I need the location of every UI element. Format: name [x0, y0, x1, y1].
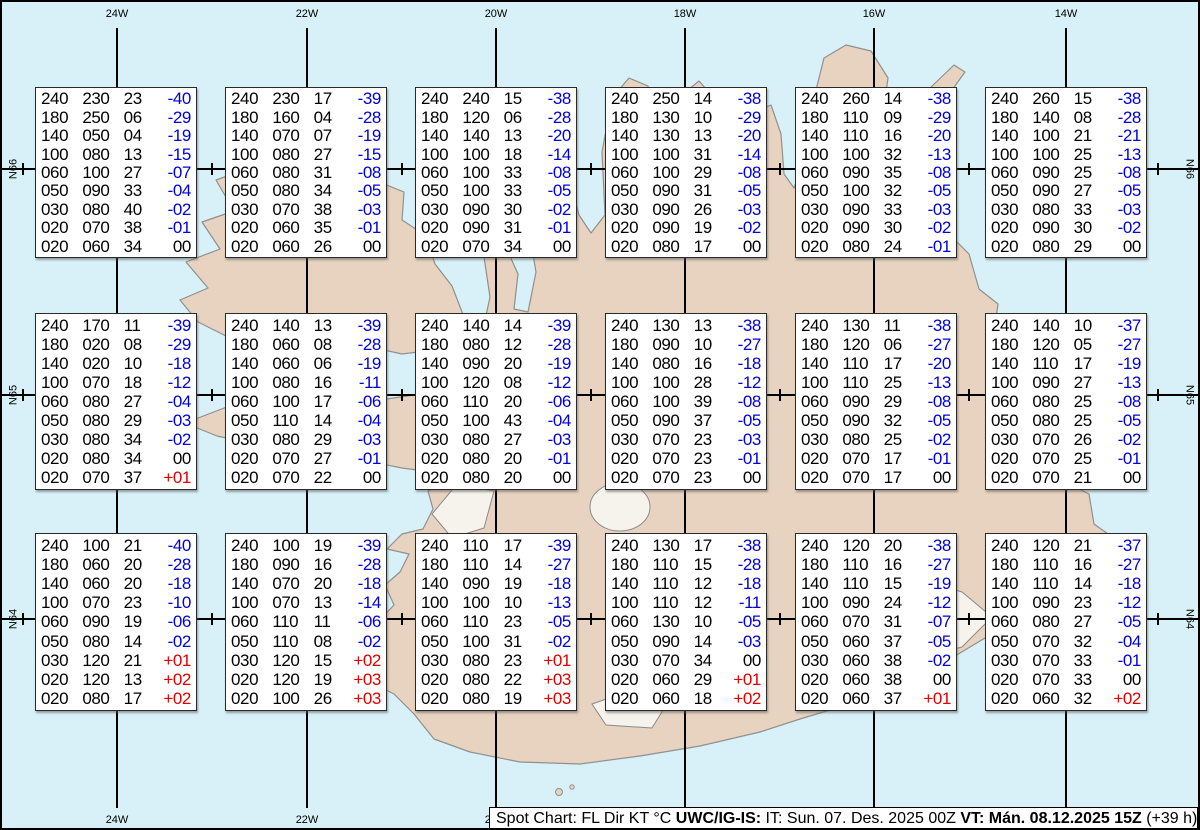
spot-data-row: 05008025-05 [991, 412, 1141, 429]
wind-direction: 090 [652, 201, 685, 218]
flight-level: 180 [41, 109, 74, 126]
spot-data-row: 03012021+01 [41, 652, 191, 669]
temperature-c: -05 [535, 182, 571, 199]
wind-direction: 060 [842, 671, 875, 688]
flight-level: 050 [801, 412, 834, 429]
wind-direction: 110 [842, 575, 875, 592]
flight-level: 180 [991, 109, 1024, 126]
flight-level: 100 [801, 146, 834, 163]
temperature-c: -03 [345, 201, 381, 218]
flight-level: 020 [41, 450, 74, 467]
wind-direction: 130 [652, 109, 685, 126]
spot-data-box-r3c4: 24013017-3818011015-2814011012-181001101… [605, 533, 767, 711]
spot-data-row: 10008013-15 [41, 146, 191, 163]
wind-direction: 080 [462, 671, 495, 688]
flight-level: 020 [421, 469, 454, 486]
temperature-c: -27 [725, 336, 761, 353]
wind-speed-kt: 10 [694, 109, 717, 126]
wind-speed-kt: 37 [884, 690, 907, 707]
wind-direction: 070 [652, 469, 685, 486]
wind-direction: 080 [272, 374, 305, 391]
spot-data-box-r3c5: 24012020-3818011016-2714011015-191000902… [795, 533, 957, 711]
temperature-c: -38 [535, 90, 571, 107]
temperature-c: -12 [535, 374, 571, 391]
temperature-c: -19 [345, 127, 381, 144]
flight-level: 180 [801, 336, 834, 353]
latitude-label-right: N66 [1184, 159, 1195, 179]
wind-speed-kt: 31 [504, 633, 527, 650]
spot-data-row: 24010021-40 [41, 537, 191, 554]
temperature-c: -29 [155, 336, 191, 353]
spot-data-row: 02009030-02 [801, 219, 951, 236]
wind-direction: 100 [462, 412, 495, 429]
wind-speed-kt: 37 [884, 633, 907, 650]
flight-level: 030 [801, 652, 834, 669]
spot-data-row: 24024015-38 [421, 90, 571, 107]
spot-data-row: 24014010-37 [991, 317, 1141, 334]
longitude-label-top: 16W [863, 8, 886, 20]
flight-level: 050 [801, 182, 834, 199]
wind-direction: 140 [462, 317, 495, 334]
wind-direction: 080 [462, 652, 495, 669]
flight-level: 100 [991, 594, 1024, 611]
wind-speed-kt: 31 [694, 146, 717, 163]
wind-speed-kt: 14 [504, 317, 527, 334]
temperature-c: -39 [345, 90, 381, 107]
wind-direction: 070 [652, 431, 685, 448]
flight-level: 240 [421, 90, 454, 107]
temperature-c: -38 [915, 537, 951, 554]
latitude-label-left: N64 [9, 609, 20, 629]
wind-direction: 140 [462, 127, 495, 144]
flight-level: 240 [801, 537, 834, 554]
wind-speed-kt: 23 [504, 652, 527, 669]
temperature-c: 00 [1105, 238, 1141, 255]
spot-data-row: 05009031-05 [611, 182, 761, 199]
flight-level: 140 [991, 127, 1024, 144]
wind-direction: 070 [82, 469, 115, 486]
spot-data-row: 10010032-13 [801, 146, 951, 163]
temperature-c: -08 [535, 164, 571, 181]
wind-direction: 110 [652, 556, 685, 573]
wind-speed-kt: 15 [1074, 90, 1097, 107]
flight-level: 060 [41, 164, 74, 181]
spot-data-row: 18011016-27 [991, 556, 1141, 573]
wind-direction: 110 [272, 412, 305, 429]
spot-data-row: 02006032+02 [991, 690, 1141, 707]
temperature-c: 00 [725, 652, 761, 669]
spot-data-row: 02007017-01 [801, 450, 951, 467]
flight-level: 140 [801, 355, 834, 372]
temperature-c: 00 [345, 238, 381, 255]
wind-speed-kt: 17 [504, 537, 527, 554]
flight-level: 140 [611, 575, 644, 592]
spot-data-row: 14013013-20 [611, 127, 761, 144]
wind-speed-kt: 32 [1074, 690, 1097, 707]
flight-level: 020 [421, 219, 454, 236]
longitude-label-top: 20W [485, 8, 508, 20]
flight-level: 020 [231, 450, 264, 467]
spot-data-row: 06010017-06 [231, 393, 381, 410]
wind-direction: 070 [82, 594, 115, 611]
spot-data-row: 06011020-06 [421, 393, 571, 410]
temperature-c: -19 [345, 355, 381, 372]
temperature-c: -05 [1105, 412, 1141, 429]
wind-speed-kt: 31 [884, 613, 907, 630]
spot-data-row: 03009033-03 [801, 201, 951, 218]
flight-level: 020 [41, 671, 74, 688]
temperature-c: -39 [345, 537, 381, 554]
wind-direction: 060 [272, 219, 305, 236]
info-prefix: Spot Chart: FL Dir KT °C [496, 810, 676, 827]
spot-data-row: 05009014-03 [611, 633, 761, 650]
flight-level: 020 [801, 450, 834, 467]
flight-level: 050 [801, 633, 834, 650]
spot-data-row: 02006037+01 [801, 690, 951, 707]
spot-data-box-r3c3: 24011017-3918011014-2714009019-181001001… [415, 533, 577, 711]
flight-level: 020 [41, 238, 74, 255]
wind-speed-kt: 08 [504, 374, 527, 391]
temperature-c: -39 [535, 537, 571, 554]
flight-level: 140 [41, 575, 74, 592]
wind-direction: 090 [842, 393, 875, 410]
spot-data-row: 10007023-10 [41, 594, 191, 611]
wind-speed-kt: 30 [884, 219, 907, 236]
flight-level: 030 [421, 201, 454, 218]
wind-speed-kt: 30 [504, 201, 527, 218]
temperature-c: -12 [915, 594, 951, 611]
wind-direction: 080 [652, 355, 685, 372]
temperature-c: -21 [1105, 127, 1141, 144]
spot-data-row: 24013011-38 [801, 317, 951, 334]
wind-direction: 090 [462, 355, 495, 372]
wind-speed-kt: 23 [124, 90, 147, 107]
wind-direction: 090 [652, 219, 685, 236]
wind-speed-kt: 14 [1074, 575, 1097, 592]
wind-speed-kt: 19 [314, 537, 337, 554]
temperature-c: -03 [535, 431, 571, 448]
spot-data-row: 05010033-05 [421, 182, 571, 199]
longitude-label-top: 24W [106, 8, 129, 20]
spot-data-row: 02009031-01 [421, 219, 571, 236]
chart-info-bar: Spot Chart: FL Dir KT °C UWC/IG-IS: IT: … [489, 807, 1198, 830]
wind-direction: 060 [272, 336, 305, 353]
wind-speed-kt: 17 [314, 90, 337, 107]
temperature-c: +02 [725, 690, 761, 707]
wind-direction: 020 [82, 336, 115, 353]
spot-data-row: 14006020-18 [41, 575, 191, 592]
wind-direction: 110 [842, 127, 875, 144]
spot-data-row: 0200702100 [991, 469, 1141, 486]
wind-speed-kt: 11 [314, 613, 337, 630]
wind-speed-kt: 14 [314, 412, 337, 429]
wind-direction: 060 [82, 556, 115, 573]
flight-level: 020 [801, 671, 834, 688]
spot-data-row: 06009035-08 [801, 164, 951, 181]
temperature-c: -19 [915, 575, 951, 592]
flight-level: 020 [231, 671, 264, 688]
flight-level: 180 [421, 109, 454, 126]
spot-data-box-r3c6: 24012021-3718011016-2714011014-181000902… [985, 533, 1147, 711]
flight-level: 020 [611, 238, 644, 255]
wind-speed-kt: 34 [124, 238, 147, 255]
spot-data-row: 03008027-03 [421, 431, 571, 448]
wind-direction: 070 [272, 469, 305, 486]
wind-speed-kt: 04 [314, 109, 337, 126]
spot-data-row: 05009037-05 [611, 412, 761, 429]
temperature-c: -08 [725, 393, 761, 410]
wind-direction: 120 [82, 671, 115, 688]
temperature-c: -39 [535, 317, 571, 334]
spot-data-row: 02008019+03 [421, 690, 571, 707]
wind-direction: 090 [1032, 164, 1065, 181]
gridline-cross-tick [590, 389, 592, 401]
wind-speed-kt: 05 [1074, 336, 1097, 353]
temperature-c: -13 [915, 146, 951, 163]
spot-data-row: 05011014-04 [231, 412, 381, 429]
flight-level: 030 [611, 201, 644, 218]
flight-level: 140 [991, 575, 1024, 592]
spot-data-row: 0200803400 [41, 450, 191, 467]
wind-speed-kt: 34 [124, 431, 147, 448]
wind-direction: 080 [272, 164, 305, 181]
wind-speed-kt: 14 [884, 90, 907, 107]
wind-direction: 110 [652, 575, 685, 592]
wind-direction: 090 [82, 182, 115, 199]
spot-data-row: 18009016-28 [231, 556, 381, 573]
wind-direction: 060 [82, 575, 115, 592]
wind-speed-kt: 13 [314, 317, 337, 334]
wind-speed-kt: 33 [1074, 652, 1097, 669]
wind-speed-kt: 16 [1074, 556, 1097, 573]
gridline-cross-tick [968, 163, 970, 175]
wind-speed-kt: 11 [124, 317, 147, 334]
wind-direction: 240 [462, 90, 495, 107]
flight-level: 020 [231, 690, 264, 707]
wind-direction: 090 [652, 182, 685, 199]
longitude-label-bottom: 24W [106, 814, 129, 826]
spot-data-row: 10012008-12 [421, 374, 571, 391]
temperature-c: -03 [1105, 201, 1141, 218]
temperature-c: -27 [535, 556, 571, 573]
wind-direction: 060 [652, 671, 685, 688]
temperature-c: 00 [155, 238, 191, 255]
gridline-cross-tick [1157, 389, 1159, 401]
wind-speed-kt: 27 [1074, 613, 1097, 630]
flight-level: 030 [801, 201, 834, 218]
wind-speed-kt: 29 [884, 393, 907, 410]
flight-level: 100 [421, 146, 454, 163]
wind-speed-kt: 34 [124, 450, 147, 467]
wind-direction: 070 [842, 450, 875, 467]
gridline-cross-tick [1157, 613, 1159, 625]
wind-speed-kt: 08 [314, 633, 337, 650]
wind-speed-kt: 38 [314, 201, 337, 218]
spot-data-row: 10010025-13 [991, 146, 1141, 163]
spot-data-box-r3c1: 24010021-4018006020-2814006020-181000702… [35, 533, 197, 711]
spot-data-row: 05007032-04 [991, 633, 1141, 650]
wind-speed-kt: 16 [884, 556, 907, 573]
temperature-c: -02 [1105, 431, 1141, 448]
spot-data-row: 18012006-27 [801, 336, 951, 353]
flight-level: 030 [991, 201, 1024, 218]
wind-speed-kt: 21 [124, 537, 147, 554]
wind-speed-kt: 20 [504, 355, 527, 372]
spot-data-row: 06009029-08 [801, 393, 951, 410]
spot-data-row: 24013013-38 [611, 317, 761, 334]
spot-data-row: 02007025-01 [991, 450, 1141, 467]
spot-data-row: 24023023-40 [41, 90, 191, 107]
wind-direction: 080 [82, 201, 115, 218]
spot-data-box-r2c5: 24013011-3818012006-2714011017-201001102… [795, 313, 957, 490]
temperature-c: -27 [1105, 336, 1141, 353]
wind-speed-kt: 15 [504, 90, 527, 107]
wind-speed-kt: 29 [124, 412, 147, 429]
wind-speed-kt: 25 [1074, 412, 1097, 429]
spot-data-row: 24010019-39 [231, 537, 381, 554]
wind-speed-kt: 16 [314, 374, 337, 391]
wind-speed-kt: 20 [124, 556, 147, 573]
gridline-cross-tick [779, 613, 781, 625]
temperature-c: -20 [725, 127, 761, 144]
wind-direction: 020 [82, 355, 115, 372]
wind-direction: 080 [1032, 613, 1065, 630]
wind-speed-kt: 26 [1074, 431, 1097, 448]
wind-direction: 100 [272, 393, 305, 410]
wind-speed-kt: 17 [694, 537, 717, 554]
spot-data-row: 02006029+01 [611, 671, 761, 688]
flight-level: 180 [41, 556, 74, 573]
flight-level: 020 [991, 690, 1024, 707]
spot-data-row: 14011014-18 [991, 575, 1141, 592]
wind-speed-kt: 17 [694, 238, 717, 255]
spot-data-row: 03007038-03 [231, 201, 381, 218]
spot-data-row: 0200802000 [421, 469, 571, 486]
wind-direction: 090 [82, 613, 115, 630]
wind-direction: 080 [82, 690, 115, 707]
spot-data-row: 24023017-39 [231, 90, 381, 107]
flight-level: 240 [611, 537, 644, 554]
temperature-c: -38 [915, 90, 951, 107]
wind-speed-kt: 34 [314, 182, 337, 199]
temperature-c: -01 [1105, 652, 1141, 669]
spot-data-row: 18011015-28 [611, 556, 761, 573]
spot-data-row: 06010027-07 [41, 164, 191, 181]
temperature-c: -01 [1105, 450, 1141, 467]
wind-speed-kt: 17 [884, 450, 907, 467]
temperature-c: 00 [535, 469, 571, 486]
spot-data-box-r2c1: 24017011-3918002008-2914002010-181000701… [35, 313, 197, 490]
wind-speed-kt: 19 [124, 613, 147, 630]
wind-direction: 090 [462, 201, 495, 218]
temperature-c: -19 [535, 355, 571, 372]
wind-direction: 080 [842, 238, 875, 255]
temperature-c: -38 [915, 317, 951, 334]
spot-data-row: 02010026+03 [231, 690, 381, 707]
info-issue-time: IT: Sun. 07. Des. 2025 00Z [761, 810, 960, 827]
wind-speed-kt: 38 [884, 671, 907, 688]
wind-speed-kt: 27 [124, 393, 147, 410]
wind-speed-kt: 39 [694, 393, 717, 410]
wind-direction: 060 [652, 690, 685, 707]
temperature-c: -02 [535, 633, 571, 650]
flight-level: 180 [801, 109, 834, 126]
temperature-c: -03 [345, 431, 381, 448]
spot-data-row: 02007023-01 [611, 450, 761, 467]
flight-level: 020 [991, 219, 1024, 236]
flight-level: 050 [41, 633, 74, 650]
flight-level: 060 [611, 393, 644, 410]
wind-direction: 070 [272, 450, 305, 467]
wind-direction: 080 [272, 182, 305, 199]
flight-level: 020 [611, 469, 644, 486]
wind-speed-kt: 22 [314, 469, 337, 486]
wind-speed-kt: 34 [694, 652, 717, 669]
wind-speed-kt: 10 [1074, 317, 1097, 334]
spot-data-row: 06008027-04 [41, 393, 191, 410]
wind-speed-kt: 13 [504, 127, 527, 144]
temperature-c: -18 [725, 355, 761, 372]
temperature-c: 00 [725, 469, 761, 486]
wind-speed-kt: 08 [124, 336, 147, 353]
temperature-c: +02 [155, 671, 191, 688]
wind-speed-kt: 23 [504, 613, 527, 630]
flight-level: 140 [801, 575, 834, 592]
wind-speed-kt: 17 [1074, 355, 1097, 372]
spot-data-row: 14011016-20 [801, 127, 951, 144]
flight-level: 100 [421, 374, 454, 391]
temperature-c: -08 [915, 164, 951, 181]
flight-level: 100 [611, 374, 644, 391]
spot-data-row: 02008022+03 [421, 671, 571, 688]
temperature-c: -10 [155, 594, 191, 611]
wind-direction: 100 [652, 164, 685, 181]
spot-data-row: 0200802900 [991, 238, 1141, 255]
temperature-c: -18 [725, 575, 761, 592]
spot-data-row: 14011017-19 [991, 355, 1141, 372]
wind-speed-kt: 11 [884, 317, 907, 334]
wind-direction: 070 [652, 652, 685, 669]
wind-speed-kt: 13 [694, 317, 717, 334]
wind-direction: 110 [462, 556, 495, 573]
flight-level: 240 [231, 537, 264, 554]
wind-direction: 080 [272, 431, 305, 448]
spot-data-row: 0200703300 [991, 671, 1141, 688]
wind-direction: 070 [272, 201, 305, 218]
flight-level: 020 [611, 219, 644, 236]
wind-direction: 080 [82, 146, 115, 163]
wind-speed-kt: 17 [884, 469, 907, 486]
wind-speed-kt: 16 [314, 556, 337, 573]
wind-direction: 120 [842, 537, 875, 554]
wind-direction: 090 [462, 575, 495, 592]
flight-level: 180 [231, 109, 264, 126]
wind-direction: 110 [462, 393, 495, 410]
flight-level: 020 [801, 469, 834, 486]
spot-data-row: 14008016-18 [611, 355, 761, 372]
spot-data-row: 24012020-38 [801, 537, 951, 554]
temperature-c: -40 [155, 537, 191, 554]
wind-speed-kt: 17 [124, 690, 147, 707]
flight-level: 020 [421, 238, 454, 255]
temperature-c: -13 [535, 594, 571, 611]
flight-level: 240 [231, 317, 264, 334]
temperature-c: -04 [1105, 633, 1141, 650]
flight-level: 100 [231, 594, 264, 611]
spot-data-row: 14007020-18 [231, 575, 381, 592]
temperature-c: -11 [725, 594, 761, 611]
wind-speed-kt: 20 [504, 450, 527, 467]
